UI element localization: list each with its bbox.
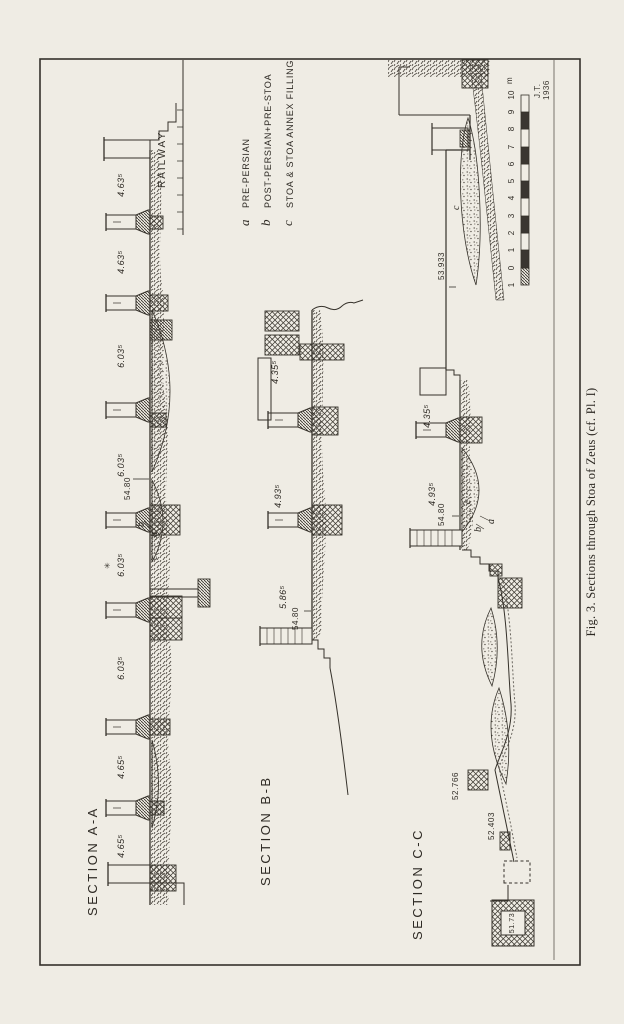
scale-tick: 1: [508, 248, 516, 252]
aa-spacing: 4.65⁵: [117, 755, 126, 779]
cc-elevation-53-933: 53.933: [438, 252, 446, 280]
bb-dim: 4.35⁵: [271, 360, 280, 384]
aa-letter-b: b: [137, 522, 147, 527]
scale-tick: 3: [508, 214, 516, 218]
cc-elevation-52-403: 52.403: [488, 812, 496, 840]
aa-letter-c: c: [150, 556, 160, 560]
railway-label: RAILWAY: [158, 131, 168, 188]
aa-spacing: 4.63⁵: [117, 173, 126, 197]
section-cc-title: SECTION C-C: [411, 828, 424, 940]
cc-elevation-51-73: 51.73: [509, 913, 516, 934]
section-bb-title: SECTION B-B: [259, 775, 272, 886]
cc-letter-b: b: [474, 527, 484, 532]
aa-spacing: 6.03⁵: [117, 344, 126, 368]
figure-landscape-canvas: SECTION A-A SECTION B-B SECTION C-C RAIL…: [0, 0, 624, 1024]
cc-letter-c: c: [463, 500, 473, 504]
cc-dim: 4.35⁵: [423, 404, 432, 428]
credit-initials: J.T.: [534, 84, 542, 98]
section-aa-title: SECTION A-A: [86, 806, 99, 916]
scale-tick: 1: [508, 283, 516, 287]
scale-tick: 5: [508, 179, 516, 183]
scale-bar: [521, 95, 529, 285]
aa-level-54-80: 54.80: [124, 477, 132, 500]
legend-label-c: STOA & STOA ANNEX FILLING: [286, 60, 295, 208]
legend-label-a: PRE-PERSIAN: [242, 138, 251, 208]
legend-key-c: c: [281, 220, 294, 226]
scale-tick: 0: [508, 266, 516, 270]
paper-background: SECTION A-A SECTION B-B SECTION C-C RAIL…: [0, 0, 624, 1024]
scale-tick: 6: [508, 162, 516, 166]
cc-level-54-80: 54.80: [438, 503, 446, 526]
aa-spacing: 4.63⁵: [117, 250, 126, 274]
scale-tick: 8: [508, 127, 516, 131]
cc-fill-letter-c: c: [452, 206, 462, 210]
cc-dim: 4.93⁵: [428, 482, 437, 506]
scale-tick: 4: [508, 196, 516, 200]
bb-dim: 4.93⁵: [274, 484, 283, 508]
scale-tick: 7: [508, 145, 516, 149]
cc-elevation-52-766: 52.766: [452, 772, 460, 800]
figure-caption: Fig. 3. Sections through Stoa of Zeus (c…: [585, 387, 598, 636]
aa-letter-a: a: [150, 532, 160, 537]
aa-spacing: 6.03⁵: [117, 453, 126, 477]
section-cc-drawing: [388, 60, 534, 946]
legend-label-b: POST-PERSIAN+PRE-STOA: [264, 74, 273, 208]
cc-letter-a: a: [487, 519, 497, 524]
bb-dim: 5.86⁵: [279, 585, 288, 609]
legend-key-a: a: [238, 220, 251, 227]
bb-level-54-80: 54.80: [292, 607, 300, 630]
aa-spacing: 4.65⁵: [117, 834, 126, 858]
aa-spacing: 6.03⁵: [117, 553, 126, 577]
scale-tick: 2: [508, 231, 516, 235]
scale-tick: 10: [508, 91, 516, 100]
scale-tick: 9: [508, 110, 516, 114]
credit-year: 1936: [543, 80, 551, 100]
aa-spacing: 6.03⁵: [117, 656, 126, 680]
legend-key-b: b: [259, 220, 272, 227]
aa-plant-symbol: ✳: [104, 562, 112, 569]
scale-unit: m: [506, 77, 514, 84]
scanned-page: { "figure": { "caption": "Fig. 3. Sectio…: [0, 0, 624, 1024]
